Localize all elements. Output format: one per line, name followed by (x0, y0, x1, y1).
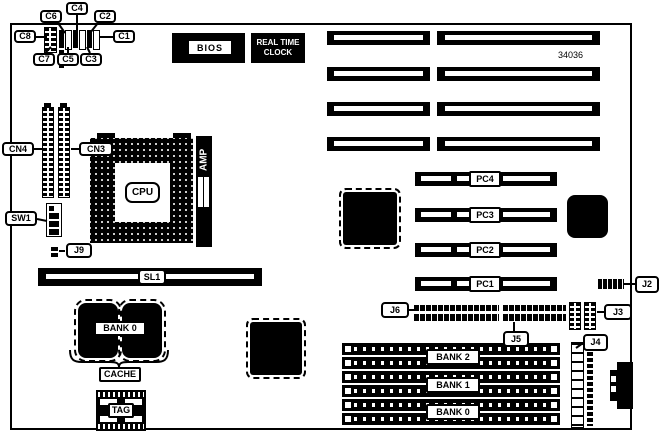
isa-slot-stripe (334, 141, 423, 146)
isa-slot (327, 137, 430, 151)
capacitor (79, 30, 86, 50)
pci-slot-stripe (503, 176, 550, 181)
label-pc1: PC1 (469, 276, 501, 292)
chipset-ic (343, 192, 397, 245)
simm-slot-latch (344, 415, 352, 423)
label-cn4: CN4 (2, 142, 34, 156)
label-c8: C8 (14, 30, 36, 43)
simm-slot-latch (550, 415, 558, 423)
sw1-segment (49, 221, 59, 227)
simm-slot-latch (550, 373, 558, 381)
pci-slot-stripe (503, 281, 550, 286)
bios-label: BIOS (197, 43, 223, 53)
pci-slot-stripe (421, 212, 451, 217)
j3-header (569, 302, 581, 330)
amp-window (198, 177, 209, 207)
isa-slot (327, 67, 430, 81)
label-pc2-text: PC2 (476, 246, 494, 255)
label-pc4-text: PC4 (476, 175, 494, 184)
keyboard-connector-pin (611, 376, 616, 382)
part-number: 34036 (558, 51, 583, 60)
label-j5-text: J5 (511, 335, 521, 344)
bios-label-plate: BIOS (188, 40, 232, 55)
capacitor-connector-block (44, 27, 57, 53)
rtc-label-line1: REAL TIME (257, 38, 300, 48)
pci-slot-stripe (503, 247, 550, 252)
simm-bank-label-1-text: BANK 1 (436, 381, 470, 390)
cn3-connector (58, 107, 70, 198)
isa-slot-stripe (445, 141, 592, 146)
pci-slot-stripe (421, 281, 451, 286)
isa-slot-stripe (334, 106, 423, 111)
isa-slot-stripe (445, 106, 592, 111)
chipset-ic (567, 195, 608, 238)
bios-chip: BIOS (172, 33, 245, 63)
isa-slot (327, 31, 430, 45)
simm-slot-latch (344, 345, 352, 353)
capacitor (87, 30, 92, 48)
pci-slot-stripe (457, 212, 469, 217)
simm-bank-label-2: BANK 2 (426, 349, 480, 365)
cpu-socket-center: CPU (115, 163, 170, 222)
label-pc3: PC3 (469, 207, 501, 223)
label-j9-text: J9 (74, 246, 84, 255)
cache-bank-label: BANK 0 (94, 321, 146, 336)
j5-header (502, 305, 566, 321)
tag-chip-pins (98, 392, 144, 397)
capacitor-row (59, 30, 103, 48)
capacitor (65, 30, 72, 50)
label-j3: J3 (604, 304, 632, 320)
sw1-segment (49, 229, 59, 235)
cn4-connector (42, 107, 54, 198)
label-j5: J5 (503, 331, 529, 347)
tag-label-text: TAG (112, 406, 130, 415)
simm-slot-latch (344, 359, 352, 367)
isa-slot (437, 31, 600, 45)
j6-header (413, 305, 499, 321)
cache-label: CACHE (99, 367, 141, 382)
label-cn4-text: CN4 (9, 145, 27, 154)
label-j4-text: J4 (590, 338, 600, 347)
capacitor (73, 30, 78, 48)
amp-regulator: AMP (196, 136, 212, 247)
label-j4: J4 (583, 334, 608, 351)
simm-slot-latch (344, 387, 352, 395)
label-c2-text: C2 (99, 12, 111, 21)
rtc-chip: REAL TIME CLOCK (251, 33, 305, 63)
j2-header (597, 279, 624, 289)
label-pc1-text: PC1 (476, 280, 494, 289)
label-c5: C5 (57, 53, 79, 66)
simm-slot-latch (550, 359, 558, 367)
pci-slot-stripe (457, 281, 469, 286)
amp-label: AMP (196, 139, 212, 181)
label-pc4: PC4 (469, 171, 501, 187)
simm-bank-label-0: BANK 0 (426, 404, 480, 420)
simm-slot-latch (550, 387, 558, 395)
isa-slot-stripe (334, 71, 423, 76)
label-c6: C6 (40, 10, 62, 23)
label-c5-text: C5 (62, 55, 74, 64)
pci-slot-stripe (457, 247, 469, 252)
label-j6-text: J6 (390, 306, 400, 315)
cpu-label: CPU (125, 182, 160, 203)
isa-slot-stripe (445, 35, 592, 40)
rtc-label-line2: CLOCK (264, 48, 292, 58)
label-c7-text: C7 (38, 55, 50, 64)
label-c3-text: C3 (85, 55, 97, 64)
label-c4: C4 (66, 2, 88, 15)
label-sw1: SW1 (5, 211, 37, 226)
chipset-ic (250, 322, 302, 375)
simm-slot-latch (550, 345, 558, 353)
label-c2: C2 (94, 10, 116, 23)
isa-slot-stripe (445, 71, 592, 76)
tag-label: TAG (108, 403, 134, 418)
sw1-notch (49, 206, 54, 211)
label-c6-text: C6 (45, 12, 57, 21)
sw1-segment (49, 213, 59, 219)
label-c4-text: C4 (71, 4, 83, 13)
isa-slot (327, 102, 430, 116)
label-pc2: PC2 (469, 242, 501, 258)
j4-connector-pins (587, 344, 593, 426)
isa-slot (437, 137, 600, 151)
label-j9: J9 (66, 243, 92, 258)
label-cn3: CN3 (79, 142, 113, 156)
capacitor (59, 30, 64, 48)
label-j6: J6 (381, 302, 409, 318)
label-j2-text: J2 (642, 280, 652, 289)
j3-header (584, 302, 596, 330)
sw1-switch (46, 203, 62, 237)
label-pc3-text: PC3 (476, 211, 494, 220)
simm-slot-latch (344, 401, 352, 409)
tag-chip-pins (98, 424, 144, 429)
isa-slot (437, 102, 600, 116)
j9-jumper (51, 245, 58, 258)
label-sl1: SL1 (138, 269, 166, 285)
label-c1-text: C1 (118, 32, 130, 41)
simm-bank-label-2-text: BANK 2 (436, 353, 470, 362)
simm-slot-latch (550, 401, 558, 409)
simm-slot-latch (344, 373, 352, 381)
capacitor (93, 30, 100, 50)
isa-slot (437, 67, 600, 81)
label-sw1-text: SW1 (11, 214, 31, 223)
motherboard-diagram: C6 C4 C2 C8 C1 C7 C5 C3 BIOS REAL TIME C… (0, 0, 659, 438)
amp-window-divider (203, 177, 204, 207)
pci-slot-stripe (503, 212, 550, 217)
simm-bank-label-1: BANK 1 (426, 377, 480, 393)
label-cn3-text: CN3 (87, 145, 105, 154)
label-c3: C3 (80, 53, 102, 66)
j4-connector (571, 342, 584, 428)
isa-slot-stripe (334, 35, 423, 40)
keyboard-connector-pin (611, 386, 616, 392)
label-c8-text: C8 (19, 32, 31, 41)
cache-label-text: CACHE (104, 370, 136, 379)
label-j3-text: J3 (613, 308, 623, 317)
pci-slot-stripe (421, 176, 451, 181)
pci-slot-stripe (421, 247, 451, 252)
label-c7: C7 (33, 53, 55, 66)
label-c1: C1 (113, 30, 135, 43)
simm-bank-label-0-text: BANK 0 (436, 408, 470, 417)
cache-bank-label-text: BANK 0 (103, 324, 137, 333)
pci-slot-stripe (457, 176, 469, 181)
label-sl1-text: SL1 (144, 273, 161, 282)
label-j2: J2 (635, 276, 659, 293)
